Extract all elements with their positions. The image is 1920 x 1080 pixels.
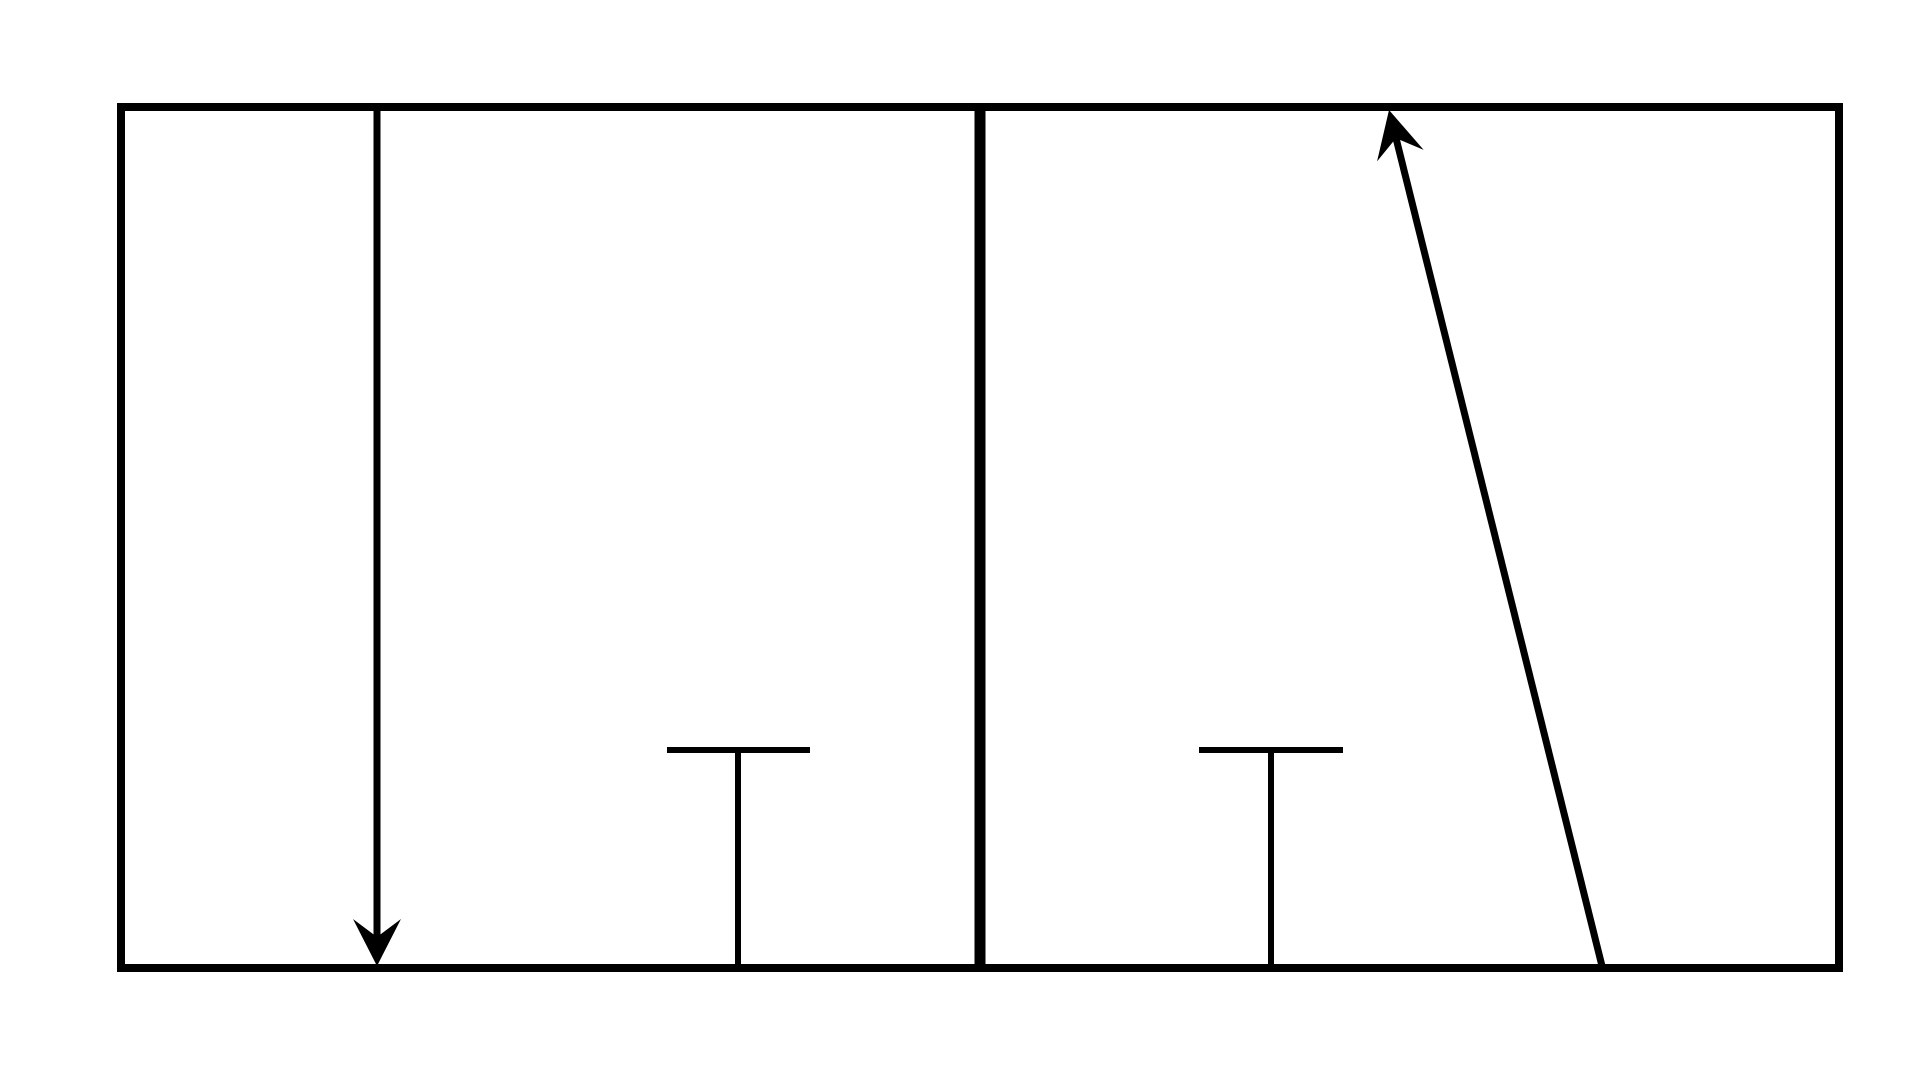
diagram-page [0,0,1920,1080]
diagram-canvas [0,0,1920,1080]
up-slant-arrow-head-icon [1366,104,1424,161]
up-slant-arrow-shaft [1396,138,1602,966]
